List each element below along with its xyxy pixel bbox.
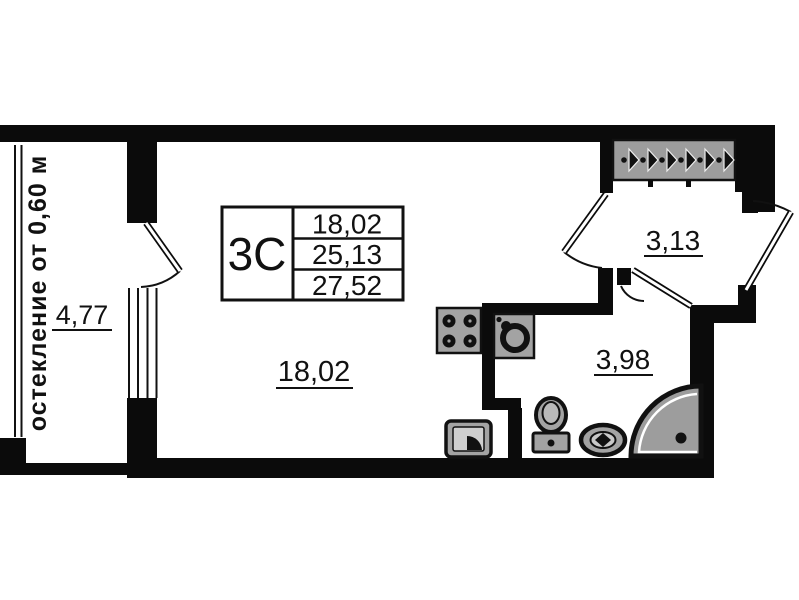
floor-plan: 3С 18,02 25,13 27,52 4,77 18,02 3,13 3,9…: [0, 0, 799, 600]
washbasin-icon: [581, 425, 625, 455]
balcony-door-icon: [141, 223, 180, 287]
kitchen-sink-icon: [494, 314, 534, 358]
window-icon: [127, 287, 157, 398]
stamp-total-area: 27,52: [312, 270, 382, 301]
living-room-area-label: 18,02: [278, 356, 351, 388]
toilet-icon: [533, 398, 569, 452]
glazing-note-label: остекление от 0,60 м: [24, 155, 52, 432]
wall-wardrobe-left: [600, 142, 613, 193]
balcony-area-label: 4,77: [56, 300, 109, 330]
wall-balcony-bottom: [0, 463, 132, 475]
floor-plan-canvas: 3С 18,02 25,13 27,52 4,77 18,02 3,13 3,9…: [0, 0, 799, 600]
stamp-living-area: 18,02: [312, 209, 382, 240]
wall-entry-top-jamb: [742, 192, 758, 213]
bathroom-area-label: 3,98: [596, 344, 651, 375]
entry-door-icon: [746, 201, 791, 290]
stamp-apartment-area: 25,13: [312, 239, 382, 270]
bathroom-door-icon: [621, 270, 691, 306]
wardrobe-hangers-icon: [613, 140, 735, 187]
unit-type-label: 3С: [228, 228, 287, 280]
washing-machine-icon: [446, 421, 491, 457]
hallway-door-icon: [564, 194, 606, 268]
stove-icon: [437, 308, 481, 353]
wall-bath-door-stub: [617, 268, 631, 285]
wall-balcony-upper: [127, 125, 157, 223]
wall-bath-jog-v: [508, 408, 522, 460]
shower-icon: [631, 386, 701, 456]
wall-bottom: [127, 458, 714, 478]
hallway-area-label: 3,13: [646, 225, 701, 256]
area-stamp-table: 3С 18,02 25,13 27,52: [222, 207, 403, 301]
balcony-glazing-line: [15, 145, 22, 437]
wall-wardrobe-right: [735, 140, 757, 192]
